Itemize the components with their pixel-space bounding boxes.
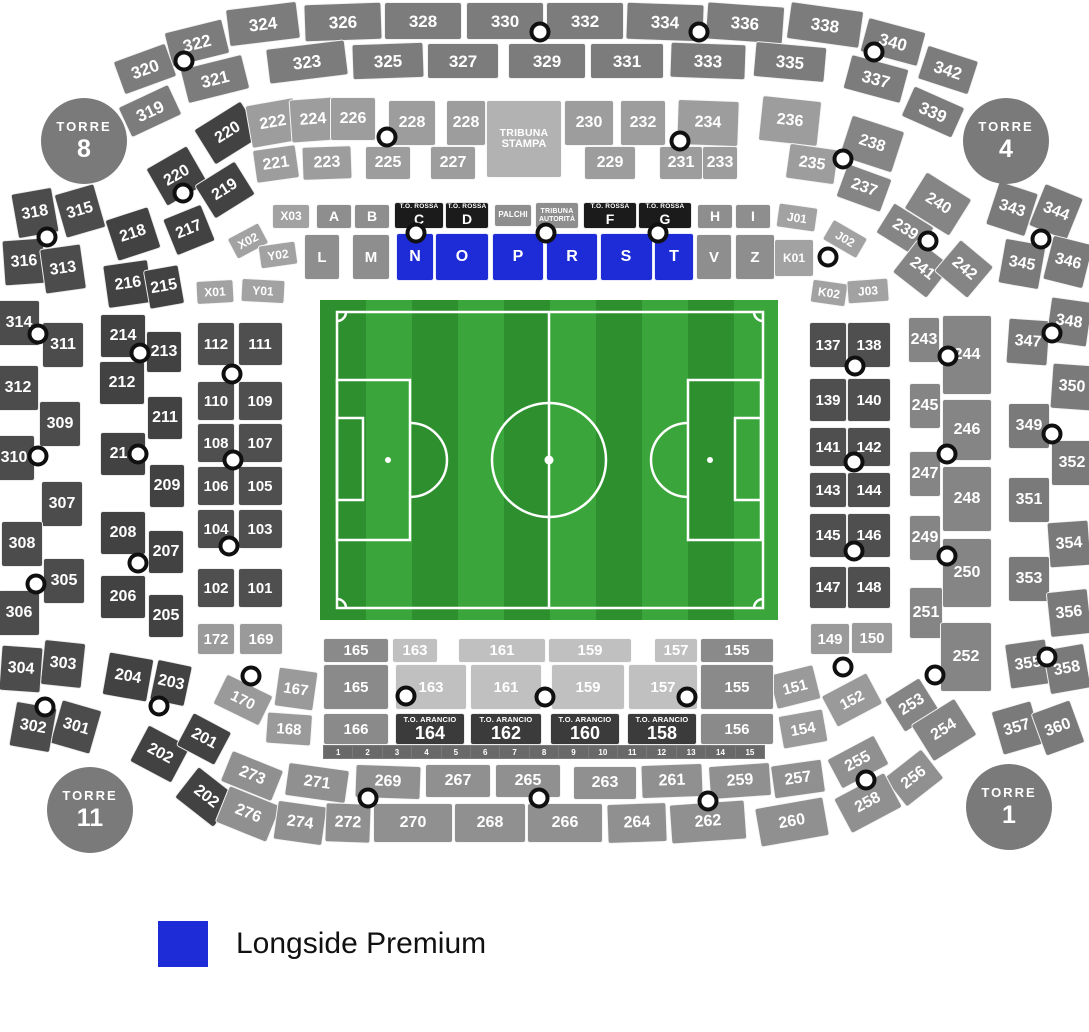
section-323[interactable]: 323	[265, 39, 349, 84]
section-label: 158	[647, 724, 677, 742]
section-336[interactable]: 336	[705, 1, 785, 44]
section-label: 102	[203, 581, 228, 596]
section-212[interactable]: 212	[99, 361, 145, 405]
section-161[interactable]: 161	[470, 664, 542, 710]
section-342[interactable]: 342	[917, 45, 979, 96]
section-307[interactable]: 307	[41, 481, 83, 527]
section-label: 258	[852, 790, 883, 817]
section-232[interactable]: 232	[620, 100, 666, 146]
section-209[interactable]: 209	[149, 464, 185, 508]
section-356[interactable]: 356	[1046, 588, 1089, 638]
section-label: T	[669, 249, 679, 265]
section-148[interactable]: 148	[847, 566, 891, 609]
section-stampa[interactable]: TRIBUNASTAMPA	[486, 100, 562, 178]
section-215[interactable]: 215	[143, 264, 185, 310]
section-j01[interactable]: J01	[775, 202, 818, 232]
gate-marker-icon	[833, 657, 854, 678]
section-label: X03	[280, 210, 301, 222]
section-label: 320	[129, 56, 161, 82]
section-343[interactable]: 343	[985, 181, 1039, 238]
section-label: 325	[374, 52, 403, 70]
section-label: 162	[491, 724, 521, 742]
tower-name: TORRE	[978, 119, 1033, 134]
section-225[interactable]: 225	[365, 146, 411, 180]
row-number: 7	[500, 746, 528, 758]
section-150[interactable]: 150	[851, 622, 893, 654]
section-264[interactable]: 264	[606, 802, 667, 844]
section-label: 309	[47, 416, 74, 432]
section-label: 224	[299, 111, 327, 129]
gate-marker-icon	[833, 149, 854, 170]
section-label: F	[606, 212, 615, 226]
section-103[interactable]: 103	[238, 509, 283, 549]
section-label: 336	[730, 14, 759, 33]
section-230[interactable]: 230	[564, 100, 614, 146]
section-331[interactable]: 331	[590, 43, 664, 79]
section-d[interactable]: T.O. ROSSAD	[445, 202, 489, 229]
gate-marker-icon	[1037, 647, 1058, 668]
section-y01[interactable]: Y01	[240, 278, 285, 304]
section-167[interactable]: 167	[273, 666, 318, 711]
gate-marker-icon	[530, 22, 551, 43]
section-label: 206	[110, 589, 137, 605]
section-label: 160	[570, 724, 600, 742]
section-label: 270	[400, 815, 427, 831]
section-label: 213	[151, 344, 178, 360]
row-number: 14	[706, 746, 734, 758]
section-label: 226	[340, 111, 367, 127]
section-248[interactable]: 248	[942, 466, 992, 532]
section-s[interactable]: S	[600, 233, 653, 281]
section-v[interactable]: V	[696, 234, 732, 280]
section-label: 139	[815, 393, 840, 408]
gate-marker-icon	[128, 444, 149, 465]
section-303[interactable]: 303	[40, 639, 87, 689]
section-165[interactable]: 165	[323, 638, 389, 663]
gate-marker-icon	[845, 356, 866, 377]
section-label: 358	[1052, 659, 1081, 679]
section-r[interactable]: R	[546, 233, 598, 281]
row-number: 6	[471, 746, 499, 758]
section-354[interactable]: 354	[1046, 520, 1089, 569]
section-label: 225	[375, 155, 402, 171]
section-i[interactable]: I	[735, 204, 771, 229]
section-a[interactable]: A	[316, 204, 352, 229]
row-number: 12	[647, 746, 675, 758]
section-228[interactable]: 228	[446, 100, 486, 146]
section-139[interactable]: 139	[809, 378, 847, 422]
section-label: 140	[856, 393, 881, 408]
gate-marker-icon	[925, 665, 946, 686]
section-label: 305	[51, 573, 78, 589]
section-338[interactable]: 338	[786, 1, 865, 49]
gate-marker-icon	[377, 127, 398, 148]
section-306[interactable]: 306	[0, 590, 40, 636]
section-350[interactable]: 350	[1049, 363, 1089, 412]
gate-marker-icon	[844, 541, 865, 562]
section-label: S	[621, 249, 632, 265]
section-107[interactable]: 107	[238, 423, 283, 463]
section-163[interactable]: 163	[392, 638, 438, 663]
section-label: 143	[815, 483, 840, 498]
section-label: 263	[592, 775, 619, 791]
section-label: 150	[859, 631, 884, 646]
section-102[interactable]: 102	[197, 568, 235, 608]
section-242[interactable]: 242	[934, 239, 995, 299]
section-110[interactable]: 110	[197, 381, 235, 421]
football-pitch	[320, 300, 778, 620]
section-x01[interactable]: X01	[195, 279, 234, 305]
row-number: 11	[618, 746, 646, 758]
section-o[interactable]: O	[435, 233, 489, 281]
section-229[interactable]: 229	[584, 146, 636, 180]
gate-marker-icon	[698, 791, 719, 812]
gate-marker-icon	[222, 364, 243, 385]
section-label: X01	[204, 285, 226, 298]
gate-marker-icon	[223, 450, 244, 471]
section-155[interactable]: 155	[700, 664, 774, 710]
section-label: 249	[912, 530, 939, 546]
section-245[interactable]: 245	[909, 383, 941, 429]
section-j03[interactable]: J03	[846, 278, 890, 305]
section-156[interactable]: 156	[700, 713, 774, 745]
tower-name: TORRE	[981, 785, 1036, 800]
section-label: 215	[149, 277, 178, 297]
gate-marker-icon	[26, 574, 47, 595]
section-label: AUTORITÀ	[539, 216, 575, 223]
section-label: 149	[817, 632, 842, 647]
section-263[interactable]: 263	[573, 766, 637, 800]
section-236[interactable]: 236	[758, 95, 822, 147]
section-235[interactable]: 235	[785, 143, 840, 186]
section-172[interactable]: 172	[197, 623, 235, 655]
section-label: 242	[949, 254, 980, 283]
section-266[interactable]: 266	[527, 803, 603, 843]
section-157[interactable]: 157	[654, 638, 698, 663]
section-315[interactable]: 315	[53, 183, 106, 239]
section-111[interactable]: 111	[238, 322, 283, 366]
section-233[interactable]: 233	[702, 146, 738, 180]
section-label: 231	[668, 155, 695, 171]
section-160[interactable]: T.O. ARANCIO160	[550, 713, 620, 745]
section-205[interactable]: 205	[148, 594, 184, 638]
section-112[interactable]: 112	[197, 322, 235, 366]
section-label: 106	[203, 479, 228, 494]
section-141[interactable]: 141	[809, 427, 847, 467]
section-label: 168	[276, 721, 302, 738]
section-k02[interactable]: K02	[810, 279, 849, 308]
gate-marker-icon	[1042, 323, 1063, 344]
section-247[interactable]: 247	[909, 451, 941, 497]
section-164[interactable]: T.O. ARANCIO164	[395, 713, 465, 745]
section-label: 334	[651, 13, 680, 31]
section-label: 268	[477, 815, 504, 831]
section-label: 141	[815, 440, 840, 455]
section-151[interactable]: 151	[768, 664, 821, 710]
section-158[interactable]: T.O. ARANCIO158	[627, 713, 697, 745]
gate-marker-icon	[128, 553, 149, 574]
gate-marker-icon	[37, 227, 58, 248]
stadium-map: 123456789101112131415 Longside Premium 3…	[0, 0, 1089, 1032]
section-m[interactable]: M	[352, 234, 390, 280]
section-y02[interactable]: Y02	[258, 240, 299, 269]
section-257[interactable]: 257	[770, 759, 826, 800]
section-143[interactable]: 143	[809, 472, 847, 508]
section-204[interactable]: 204	[102, 651, 155, 702]
gate-marker-icon	[241, 666, 262, 687]
section-label: 151	[781, 677, 809, 698]
section-227[interactable]: 227	[430, 146, 476, 180]
section-label: 202	[191, 782, 222, 811]
section-label: PALCHI	[498, 211, 527, 219]
section-152[interactable]: 152	[821, 672, 884, 728]
section-144[interactable]: 144	[847, 472, 891, 508]
section-label: 240	[922, 190, 953, 218]
section-217[interactable]: 217	[162, 204, 216, 257]
gate-marker-icon	[937, 546, 958, 567]
section-161[interactable]: 161	[458, 638, 546, 663]
section-162[interactable]: T.O. ARANCIO162	[470, 713, 542, 745]
section-label: 223	[313, 155, 340, 172]
section-sublabel: T.O. ARANCIO	[480, 716, 533, 724]
section-label: 155	[724, 680, 749, 695]
section-309[interactable]: 309	[39, 401, 81, 447]
section-165[interactable]: 165	[323, 664, 389, 710]
section-329[interactable]: 329	[508, 43, 586, 79]
section-label: K02	[817, 286, 840, 301]
section-168[interactable]: 168	[265, 711, 313, 746]
section-327[interactable]: 327	[427, 43, 499, 79]
section-label: 329	[533, 53, 561, 70]
section-265[interactable]: 265	[495, 764, 561, 798]
section-b[interactable]: B	[354, 204, 390, 229]
row-number: 9	[559, 746, 587, 758]
section-label: 209	[154, 478, 181, 494]
row-number: 4	[412, 746, 440, 758]
section-226[interactable]: 226	[330, 97, 376, 141]
section-label: 303	[49, 655, 77, 674]
section-206[interactable]: 206	[100, 575, 146, 619]
section-312[interactable]: 312	[0, 365, 39, 411]
section-label: P	[513, 249, 524, 265]
section-333[interactable]: 333	[669, 42, 746, 81]
section-332[interactable]: 332	[546, 2, 624, 40]
section-label: 110	[204, 394, 228, 409]
section-243[interactable]: 243	[908, 317, 940, 363]
section-213[interactable]: 213	[146, 331, 182, 373]
row-number: 8	[530, 746, 558, 758]
section-313[interactable]: 313	[39, 243, 87, 294]
section-352[interactable]: 352	[1051, 440, 1089, 486]
tower-11: TORRE11	[47, 767, 133, 853]
section-h[interactable]: H	[697, 204, 733, 229]
section-208[interactable]: 208	[100, 511, 146, 555]
section-label: 310	[1, 450, 28, 466]
section-sublabel: T.O. ARANCIO	[559, 716, 612, 724]
section-267[interactable]: 267	[425, 764, 491, 798]
section-label: 301	[61, 716, 91, 739]
section-label: 343	[997, 197, 1027, 220]
section-251[interactable]: 251	[909, 587, 943, 639]
section-271[interactable]: 271	[284, 762, 350, 804]
section-label: 327	[449, 53, 477, 70]
section-147[interactable]: 147	[809, 566, 847, 609]
section-label: 264	[623, 815, 650, 832]
row-number: 15	[736, 746, 764, 758]
section-308[interactable]: 308	[1, 521, 43, 567]
section-label: 170	[228, 688, 257, 712]
gate-marker-icon	[149, 696, 170, 717]
gate-marker-icon	[689, 22, 710, 43]
gate-marker-icon	[358, 788, 379, 809]
gate-marker-icon	[396, 686, 417, 707]
gate-marker-icon	[937, 444, 958, 465]
section-218[interactable]: 218	[104, 206, 161, 262]
gate-marker-icon	[406, 223, 427, 244]
section-140[interactable]: 140	[847, 378, 891, 422]
section-label: 165	[343, 643, 368, 658]
section-label: 218	[118, 222, 148, 245]
section-label: 324	[248, 14, 278, 34]
section-label: H	[710, 209, 720, 223]
section-270[interactable]: 270	[373, 803, 453, 843]
section-149[interactable]: 149	[810, 623, 850, 655]
section-166[interactable]: 166	[323, 713, 389, 745]
section-label: 302	[18, 717, 47, 737]
row-number: 2	[353, 746, 381, 758]
section-351[interactable]: 351	[1008, 477, 1050, 523]
section-label: 307	[49, 496, 76, 512]
section-268[interactable]: 268	[454, 803, 526, 843]
section-l[interactable]: L	[304, 234, 340, 280]
section-f[interactable]: T.O. ROSSAF	[583, 202, 637, 229]
section-260[interactable]: 260	[754, 796, 830, 848]
section-label: 152	[837, 688, 866, 713]
section-label: 212	[109, 375, 136, 391]
section-304[interactable]: 304	[0, 645, 44, 694]
section-label: 261	[658, 773, 685, 790]
section-label: 161	[493, 680, 518, 695]
section-325[interactable]: 325	[351, 42, 424, 80]
section-label: 166	[343, 722, 368, 737]
section-label: 356	[1055, 604, 1083, 623]
section-sublabel: T.O. ROSSA	[646, 204, 685, 211]
section-label: 331	[613, 53, 641, 70]
section-x03[interactable]: X03	[272, 204, 310, 229]
section-259[interactable]: 259	[708, 762, 772, 800]
section-label: 311	[50, 337, 76, 353]
row-number: 5	[442, 746, 470, 758]
section-label: 228	[399, 115, 426, 131]
section-label: STAMPA	[502, 139, 547, 150]
section-label: 252	[953, 649, 980, 665]
section-label: 219	[209, 176, 240, 204]
gate-marker-icon	[28, 446, 49, 467]
section-360[interactable]: 360	[1030, 699, 1085, 757]
gate-marker-icon	[35, 697, 56, 718]
section-159[interactable]: 159	[551, 664, 625, 710]
section-106[interactable]: 106	[197, 466, 235, 506]
row-number: 3	[383, 746, 411, 758]
section-109[interactable]: 109	[238, 381, 283, 421]
section-label: 271	[303, 773, 332, 793]
section-301[interactable]: 301	[49, 699, 102, 755]
section-339[interactable]: 339	[901, 85, 966, 139]
section-label: 233	[707, 155, 734, 171]
section-274[interactable]: 274	[272, 800, 327, 847]
section-155[interactable]: 155	[700, 638, 774, 663]
section-311[interactable]: 311	[42, 322, 84, 368]
legend-swatch	[158, 921, 208, 967]
section-326[interactable]: 326	[303, 2, 382, 43]
section-335[interactable]: 335	[753, 41, 828, 83]
section-label: 262	[694, 813, 722, 831]
section-label: 111	[248, 337, 271, 352]
section-145[interactable]: 145	[809, 513, 847, 558]
section-palchi[interactable]: PALCHI	[494, 204, 532, 227]
section-328[interactable]: 328	[384, 2, 462, 40]
section-353[interactable]: 353	[1008, 556, 1050, 602]
section-252[interactable]: 252	[940, 622, 992, 692]
section-261[interactable]: 261	[640, 763, 703, 799]
section-label: 353	[1016, 571, 1043, 587]
section-305[interactable]: 305	[43, 558, 85, 604]
section-label: 157	[650, 680, 675, 695]
gate-marker-icon	[219, 536, 240, 557]
section-label: 204	[113, 667, 142, 687]
section-label: 142	[856, 440, 881, 455]
section-137[interactable]: 137	[809, 322, 847, 368]
section-101[interactable]: 101	[238, 568, 283, 608]
section-label: 306	[6, 605, 33, 621]
section-221[interactable]: 221	[252, 144, 300, 184]
section-105[interactable]: 105	[238, 466, 283, 506]
section-272[interactable]: 272	[324, 802, 371, 844]
section-sublabel: T.O. ROSSA	[591, 204, 630, 211]
section-label: 333	[694, 52, 723, 70]
row-number: 13	[677, 746, 705, 758]
section-223[interactable]: 223	[301, 145, 352, 181]
section-211[interactable]: 211	[147, 396, 183, 440]
section-324[interactable]: 324	[225, 1, 301, 47]
section-label: 108	[203, 436, 228, 451]
section-label: O	[456, 249, 468, 265]
section-207[interactable]: 207	[148, 530, 184, 574]
section-label: 254	[928, 716, 959, 744]
section-label: 161	[489, 643, 514, 658]
section-label: V	[709, 250, 719, 265]
section-label: 357	[1002, 717, 1032, 740]
section-label: 159	[575, 680, 600, 695]
section-z[interactable]: Z	[735, 234, 775, 280]
section-label: 266	[552, 815, 579, 831]
tower-name: TORRE	[62, 788, 117, 803]
section-label: 313	[49, 259, 78, 279]
section-label: 243	[911, 332, 938, 348]
gate-marker-icon	[173, 183, 194, 204]
section-k01[interactable]: K01	[774, 239, 814, 277]
section-p[interactable]: P	[492, 233, 544, 281]
section-159[interactable]: 159	[548, 638, 632, 663]
section-154[interactable]: 154	[777, 708, 828, 749]
gate-marker-icon	[648, 223, 669, 244]
section-169[interactable]: 169	[239, 623, 283, 655]
section-label: 260	[777, 812, 806, 832]
tower-number: 1	[1002, 801, 1016, 830]
section-label: 342	[932, 58, 964, 83]
section-label: 248	[954, 491, 981, 507]
section-label: 221	[262, 154, 291, 174]
